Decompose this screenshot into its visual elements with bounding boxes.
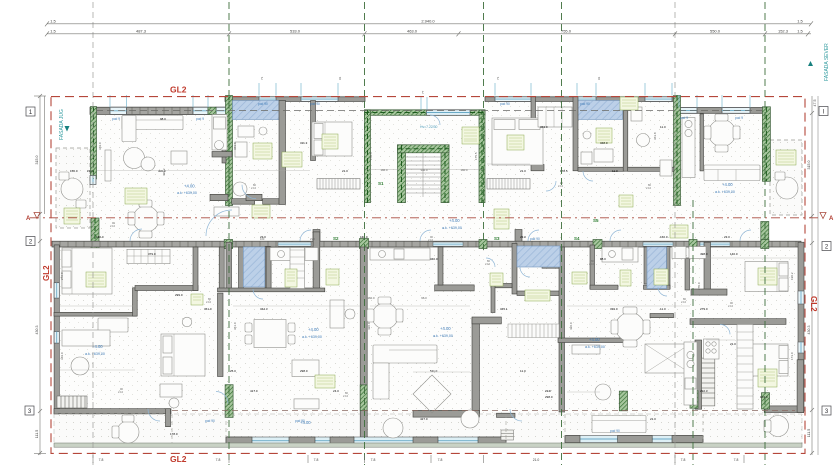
svg-text:88.0: 88.0 [600, 257, 606, 261]
svg-text:430.3: 430.3 [35, 326, 39, 335]
svg-text:2.10: 2.10 [589, 262, 595, 266]
svg-text:344.3: 344.3 [260, 307, 268, 311]
svg-text:pod 9: pod 9 [196, 117, 204, 121]
svg-text:292.3: 292.3 [700, 389, 708, 393]
svg-text:a.k. +639,00: a.k. +639,00 [433, 334, 453, 338]
svg-text:21.0: 21.0 [520, 169, 526, 173]
svg-text:21.0: 21.0 [333, 389, 339, 393]
svg-text:2.10: 2.10 [646, 186, 652, 190]
svg-text:511.0: 511.0 [430, 369, 438, 373]
svg-text:25.0: 25.0 [230, 369, 236, 373]
svg-text:2.940.0: 2.940.0 [421, 18, 435, 23]
svg-text:+4.00: +4.00 [440, 326, 451, 331]
svg-text:298.0: 298.0 [545, 395, 553, 399]
svg-text:GL2: GL2 [170, 85, 187, 95]
svg-text:+4.00: +4.00 [589, 337, 600, 342]
svg-text:275.0: 275.0 [700, 307, 708, 311]
svg-text:379.0: 379.0 [148, 252, 156, 256]
svg-text:21.0: 21.0 [87, 169, 93, 173]
svg-text:2.10: 2.10 [206, 300, 212, 304]
svg-text:140.0: 140.0 [730, 252, 738, 256]
svg-text:2.10: 2.10 [485, 262, 491, 266]
svg-text:175.5: 175.5 [474, 152, 478, 160]
svg-text:21.0: 21.0 [342, 169, 348, 173]
svg-text:pod 9: pod 9 [735, 116, 743, 120]
svg-text:pod 90: pod 90 [205, 419, 215, 423]
svg-text:363.0: 363.0 [540, 125, 548, 129]
svg-text:GL2: GL2 [42, 265, 51, 281]
svg-text:1.5: 1.5 [797, 18, 803, 23]
svg-text:FASADA SEVER: FASADA SEVER [824, 43, 830, 81]
svg-text:298.0: 298.0 [300, 369, 308, 373]
svg-text:2.10: 2.10 [558, 184, 564, 188]
svg-text:21.0: 21.0 [650, 417, 656, 421]
svg-text:7.8: 7.8 [99, 458, 104, 462]
svg-text:173.0: 173.0 [790, 352, 794, 360]
svg-text:77: 77 [421, 90, 425, 94]
svg-text:427.0: 427.0 [420, 417, 428, 421]
svg-text:98.0: 98.0 [160, 117, 166, 121]
svg-text:a.k. +639,00: a.k. +639,00 [302, 335, 322, 339]
svg-text:a.k. +639,00: a.k. +639,00 [585, 345, 605, 349]
svg-text:71: 71 [496, 76, 500, 80]
svg-text:7.8: 7.8 [371, 458, 376, 462]
svg-text:755.0: 755.0 [561, 29, 572, 34]
svg-text:S2: S2 [333, 236, 339, 241]
svg-text:103.0: 103.0 [760, 395, 768, 399]
svg-text:S1: S1 [378, 181, 384, 186]
svg-text:A: A [26, 216, 31, 222]
svg-text:340.0: 340.0 [430, 257, 438, 261]
svg-text:2.10: 2.10 [118, 390, 124, 394]
svg-text:498.0: 498.0 [700, 252, 708, 256]
svg-text:11.0: 11.0 [660, 307, 666, 311]
svg-text:pod 90: pod 90 [580, 102, 590, 106]
svg-text:23.0: 23.0 [310, 237, 316, 241]
svg-text:1.5: 1.5 [50, 18, 56, 23]
svg-text:349.0: 349.0 [98, 142, 102, 150]
svg-text:2.10: 2.10 [110, 224, 116, 228]
svg-text:FASADA JUG: FASADA JUG [59, 109, 65, 140]
svg-text:a.k. +639,00: a.k. +639,00 [85, 352, 105, 356]
svg-text:+4.00: +4.00 [92, 344, 103, 349]
svg-text:160.0: 160.0 [96, 235, 104, 239]
svg-text:7.8: 7.8 [314, 458, 319, 462]
svg-text:GL2: GL2 [809, 296, 818, 312]
svg-text:2.10: 2.10 [428, 238, 434, 242]
svg-text:2.10: 2.10 [728, 304, 734, 308]
svg-text:363.0: 363.0 [233, 142, 237, 150]
svg-text:91: 91 [338, 76, 342, 80]
svg-text:180.0: 180.0 [461, 168, 468, 172]
svg-text:7.8: 7.8 [438, 458, 443, 462]
svg-text:175.5: 175.5 [369, 152, 373, 160]
svg-text:430.3: 430.3 [807, 326, 811, 335]
svg-text:275.0: 275.0 [697, 282, 701, 290]
svg-text:a.k. +639,00: a.k. +639,00 [715, 190, 735, 194]
svg-text:2.10: 2.10 [343, 394, 349, 398]
svg-text:140.0: 140.0 [421, 168, 428, 172]
svg-text:91: 91 [597, 76, 601, 80]
svg-text:330.0: 330.0 [610, 307, 618, 311]
svg-text:299.0: 299.0 [175, 293, 183, 297]
svg-text:pod 90: pod 90 [500, 102, 510, 106]
svg-text:+4.00: +4.00 [184, 184, 195, 189]
svg-text:420.0: 420.0 [367, 322, 371, 330]
svg-text:272.0: 272.0 [60, 272, 64, 280]
svg-text:315.0: 315.0 [807, 161, 811, 170]
svg-text:152.3: 152.3 [778, 29, 789, 34]
svg-text:311.3: 311.3 [300, 141, 308, 145]
svg-text:417.0: 417.0 [250, 389, 258, 393]
svg-text:pod 9: pod 9 [680, 116, 688, 120]
svg-text:21.0: 21.0 [730, 342, 736, 346]
svg-text:111.5: 111.5 [807, 429, 811, 437]
svg-text:349.0: 349.0 [60, 352, 64, 360]
svg-text:160.0: 160.0 [360, 235, 368, 239]
svg-text:7.8: 7.8 [734, 458, 739, 462]
svg-text:550.0: 550.0 [710, 29, 721, 34]
svg-text:190.2: 190.2 [790, 272, 794, 280]
svg-text:S3: S3 [494, 236, 500, 241]
svg-text:a.k. +639,00: a.k. +639,00 [442, 226, 462, 230]
svg-text:348.0: 348.0 [600, 141, 608, 145]
svg-text:GL2: GL2 [170, 454, 187, 464]
svg-text:pod 90: pod 90 [258, 102, 268, 106]
svg-text:180.0: 180.0 [381, 168, 388, 172]
svg-text:23.0: 23.0 [520, 235, 526, 239]
svg-text:+4.00: +4.00 [722, 182, 733, 187]
svg-text:2.10: 2.10 [251, 186, 257, 190]
svg-text:361.0: 361.0 [233, 322, 237, 330]
svg-text:11.0: 11.0 [520, 369, 526, 373]
svg-text:pod 90: pod 90 [295, 419, 305, 423]
svg-text:490.2: 490.2 [162, 168, 166, 176]
svg-text:71: 71 [260, 76, 264, 80]
svg-text:pod 9: pod 9 [112, 117, 120, 121]
svg-text:S5: S5 [593, 218, 599, 223]
svg-text:420.0: 420.0 [569, 322, 573, 330]
svg-text:21.0: 21.0 [545, 389, 551, 393]
svg-text:pod 90: pod 90 [310, 102, 320, 106]
svg-text:+4.00: +4.00 [449, 218, 460, 223]
svg-text:23.0: 23.0 [724, 235, 730, 239]
svg-text:11.0: 11.0 [612, 169, 618, 173]
svg-text:a.k. +639,00: a.k. +639,00 [177, 191, 197, 195]
svg-text:533.0: 533.0 [290, 29, 301, 34]
svg-text:47.5: 47.5 [813, 100, 817, 107]
svg-text:1.5: 1.5 [797, 29, 803, 34]
svg-text:178.0: 178.0 [170, 432, 178, 436]
svg-text:7.8: 7.8 [216, 458, 221, 462]
svg-text:7.8: 7.8 [681, 458, 686, 462]
svg-text:A: A [829, 216, 834, 222]
svg-text:160.0: 160.0 [368, 296, 375, 300]
svg-text:11.0: 11.0 [660, 125, 666, 129]
svg-text:487.3: 487.3 [136, 29, 147, 34]
svg-text:463.0: 463.0 [407, 29, 418, 34]
svg-text:96.0: 96.0 [421, 296, 427, 300]
svg-text:S4: S4 [574, 236, 580, 241]
svg-text:363.0: 363.0 [653, 132, 657, 140]
svg-text:150.0: 150.0 [70, 169, 78, 173]
svg-text:2.10: 2.10 [681, 300, 687, 304]
svg-text:160: 160 [260, 237, 265, 241]
svg-text:pod 90: pod 90 [610, 429, 620, 433]
svg-text:1.5: 1.5 [50, 29, 56, 34]
svg-text:+4.00: +4.00 [308, 327, 319, 332]
svg-text:345.1: 345.1 [500, 307, 508, 311]
svg-text:21.0: 21.0 [533, 458, 540, 462]
svg-text:111.5: 111.5 [35, 430, 39, 438]
svg-text:Hv=7.22/30: Hv=7.22/30 [420, 125, 438, 129]
svg-text:pod 90: pod 90 [530, 237, 540, 241]
svg-text:160.0: 160.0 [660, 235, 668, 239]
svg-text:361.0: 361.0 [204, 307, 212, 311]
svg-text:315.0: 315.0 [35, 156, 39, 165]
